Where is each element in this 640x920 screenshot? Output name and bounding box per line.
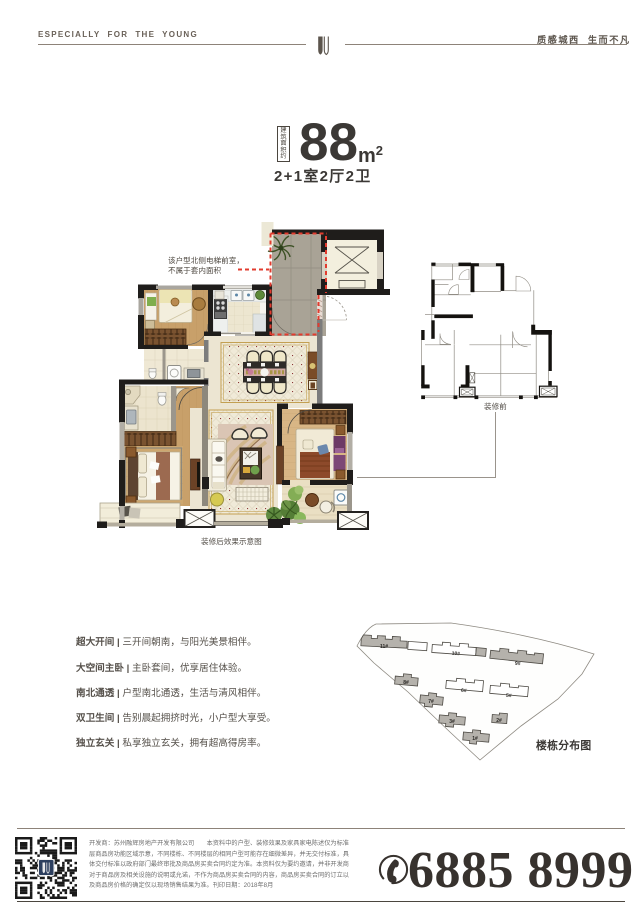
svg-text:1#: 1# (472, 736, 478, 742)
svg-text:7#: 7# (428, 699, 434, 705)
svg-text:10#: 10# (451, 651, 460, 658)
svg-text:6#: 6# (461, 688, 467, 694)
svg-text:8#: 8# (403, 680, 409, 686)
svg-text:9#: 9# (515, 661, 521, 668)
svg-text:3#: 3# (449, 719, 455, 725)
svg-text:5#: 5# (506, 693, 512, 699)
svg-text:2#: 2# (496, 718, 502, 724)
svg-text:11#: 11# (380, 644, 388, 650)
